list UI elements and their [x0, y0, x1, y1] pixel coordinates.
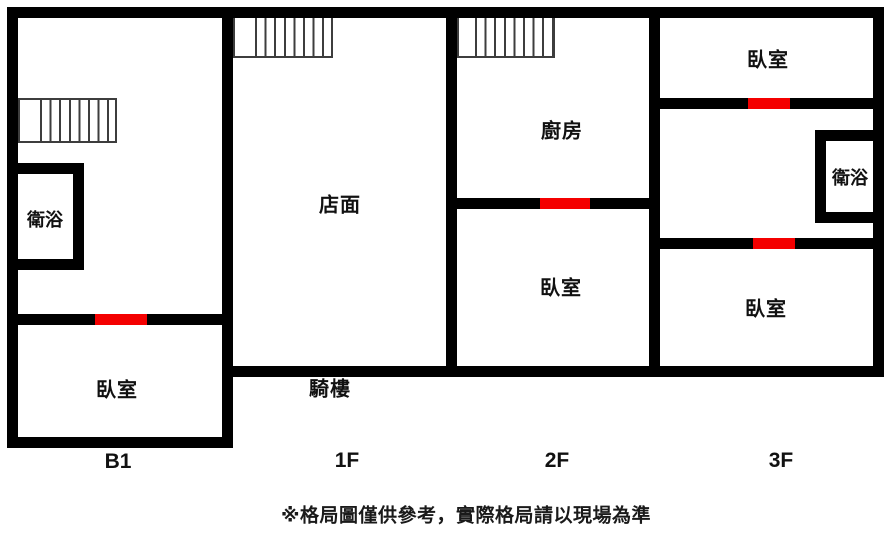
- b1-staircase-steps: [40, 100, 115, 141]
- 2f-staircase-steps: [475, 18, 553, 56]
- 3f-bathroom-label: 衛浴: [832, 164, 868, 190]
- b1-bathroom-label: 衛浴: [27, 206, 63, 232]
- b1-door-marker: [95, 314, 147, 325]
- wall-divider-2f-3f: [649, 7, 660, 377]
- 2f-floor-label: 2F: [545, 449, 570, 473]
- 3f-bathroom-wall-left: [815, 130, 826, 223]
- 1f-arcade-label: 騎樓: [309, 373, 351, 402]
- 2f-staircase: [457, 18, 555, 58]
- 3f-floor-label: 3F: [769, 449, 794, 473]
- wall-b1-right: [222, 7, 233, 448]
- b1-floor-label: B1: [105, 450, 132, 474]
- b1-bathroom-wall-right: [73, 163, 84, 270]
- 1f-storefront-label: 店面: [319, 189, 361, 218]
- wall-outer-right: [873, 7, 884, 377]
- wall-outer-left: [7, 7, 18, 448]
- 2f-door-marker: [540, 198, 590, 209]
- 1f-staircase: [233, 18, 333, 58]
- disclaimer-text: ※格局圖僅供參考，實際格局請以現場為準: [281, 501, 651, 528]
- 2f-kitchen-label: 廚房: [541, 115, 583, 144]
- 3f-bathroom-wall-bottom: [815, 212, 884, 223]
- 1f-staircase-steps: [255, 18, 331, 56]
- wall-b1-bottom: [7, 437, 233, 448]
- 2f-bedroom-label: 臥室: [540, 272, 582, 301]
- 3f-bedroom-bottom-label: 臥室: [745, 293, 787, 322]
- 1f-floor-label: 1F: [335, 449, 360, 473]
- 3f-door-marker-top: [748, 98, 790, 109]
- floor-plan: 衛浴 臥室 B1 店面 騎樓 1F 廚房 臥室 2F 臥室 衛浴 臥室 3F ※…: [0, 0, 889, 536]
- b1-bedroom-label: 臥室: [96, 374, 138, 403]
- 3f-door-marker-bottom: [753, 238, 795, 249]
- wall-divider-1f-2f: [446, 7, 457, 377]
- 3f-bedroom-top-label: 臥室: [747, 44, 789, 73]
- b1-bathroom-wall-bottom: [7, 259, 84, 270]
- b1-staircase: [18, 98, 117, 143]
